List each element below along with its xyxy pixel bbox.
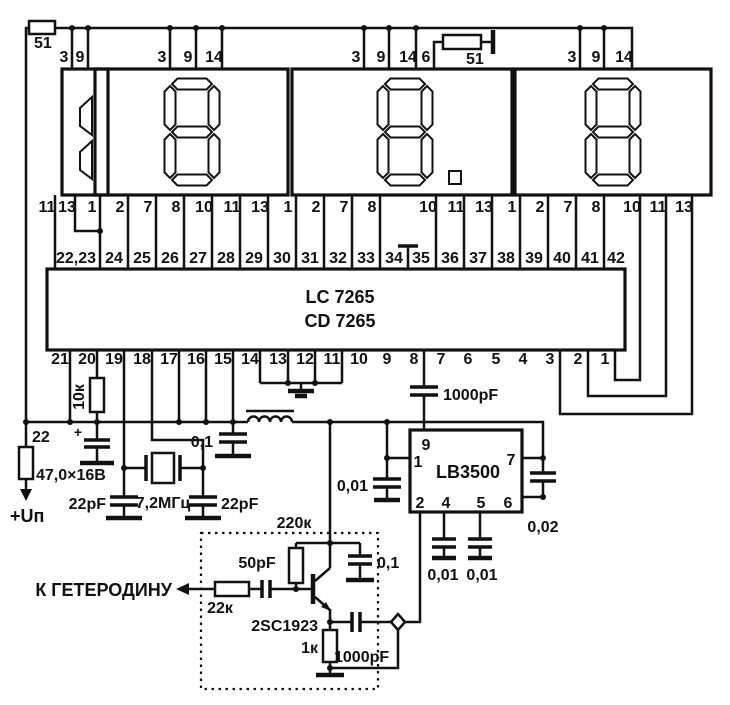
display-bottom-pin-label: 1 bbox=[284, 199, 293, 216]
electrolytic-plus-label: + bbox=[74, 424, 82, 440]
transistor-label: 2SC1923 bbox=[251, 618, 318, 635]
resistor-51-top-left-label: 51 bbox=[34, 35, 52, 52]
display-bottom-pin-label: 11 bbox=[39, 199, 56, 216]
inductor-coil bbox=[248, 417, 292, 423]
cap-001-a-label: 0,01 bbox=[427, 567, 458, 584]
resistor-51-top-right bbox=[443, 35, 481, 49]
ic-bottom-pin-label: 2 bbox=[574, 351, 583, 368]
lb3500-pin9-label: 9 bbox=[422, 437, 431, 454]
display-bottom-pin-label: 8 bbox=[172, 199, 181, 216]
display-bottom-pin-label: 8 bbox=[368, 199, 377, 216]
display-top-pin-label: 9 bbox=[377, 49, 386, 66]
ic-main-name-1: LC 7265 bbox=[305, 287, 374, 307]
display-bottom-pin-label: 13 bbox=[251, 199, 269, 216]
cap-22pf-right-label: 22pF bbox=[221, 496, 259, 513]
resistor-22k bbox=[215, 582, 249, 596]
ic-top-pin-label: 29 bbox=[245, 250, 263, 267]
lb3500-pin6-label: 6 bbox=[504, 495, 513, 512]
ic-top-pin-label: 37 bbox=[469, 250, 487, 267]
ic-bottom-pin-label: 10 bbox=[350, 351, 368, 368]
display-top-pin-label: 14 bbox=[615, 49, 633, 66]
lb3500-pin5-label: 5 bbox=[477, 495, 486, 512]
cap-1000pf-bottom-label: 1000pF bbox=[334, 649, 389, 666]
display-bottom-pin-label: 2 bbox=[116, 199, 125, 216]
ic-bottom-pin-label: 3 bbox=[546, 351, 555, 368]
ic-bottom-pin-label: 19 bbox=[105, 351, 123, 368]
resistor-10k-label: 10к bbox=[71, 383, 88, 410]
ic-top-pin-label: 26 bbox=[161, 250, 179, 267]
ic-bottom-pin-label: 21 bbox=[51, 351, 69, 368]
ic-bottom-pin-label: 14 bbox=[241, 351, 259, 368]
ic-bottom-pin-label: 8 bbox=[410, 351, 419, 368]
display-bottom-pin-label: 8 bbox=[592, 199, 601, 216]
lb3500-pin7-label: 7 bbox=[507, 452, 516, 469]
ic-bottom-pin-label: 18 bbox=[133, 351, 151, 368]
schematic-page: 51 51 10к 22 +Uп + 47,0×16В 22pF 7,2МГц … bbox=[0, 0, 730, 700]
display-bottom-pin-label: 10 bbox=[195, 199, 213, 216]
ic-top-pin-label: 40 bbox=[553, 250, 571, 267]
resistor-220k-label: 220к bbox=[277, 515, 313, 532]
ic-main-name-2: CD 7265 bbox=[304, 311, 375, 331]
display-bottom-pin-label: 11 bbox=[224, 199, 241, 216]
display-top-pin-label: 9 bbox=[592, 49, 601, 66]
frequency-counter-schematic: 51 51 10к 22 +Uп + 47,0×16В 22pF 7,2МГц … bbox=[0, 0, 730, 700]
ic-top-pin-label: 33 bbox=[357, 250, 375, 267]
display-bottom-pin-label: 1 bbox=[508, 199, 517, 216]
coax-connector-icon bbox=[391, 614, 405, 630]
display-bottom-pin-label: 11 bbox=[650, 199, 667, 216]
ic-top-pin-label: 42 bbox=[607, 250, 625, 267]
ic-top-pin-label: 27 bbox=[189, 250, 207, 267]
display-bottom-pin-label: 7 bbox=[564, 199, 573, 216]
cap-50pf-label: 50pF bbox=[238, 555, 276, 572]
display-bottom-pin-label: 10 bbox=[623, 199, 641, 216]
cap-001-b-label: 0,01 bbox=[466, 567, 497, 584]
resistor-22-label: 22 bbox=[32, 429, 50, 446]
lb3500-pin4-label: 4 bbox=[442, 495, 451, 512]
ic-bottom-pin-label: 16 bbox=[187, 351, 205, 368]
resistor-220k bbox=[289, 548, 303, 583]
display-top-pin-label: 14 bbox=[399, 49, 417, 66]
display-bottom-pin-label: 2 bbox=[536, 199, 545, 216]
ic-bottom-pin-label: 1 bbox=[601, 351, 610, 368]
output-arrow-icon bbox=[176, 583, 189, 595]
ic-top-pin-label: 25 bbox=[133, 250, 151, 267]
crystal-label: 7,2МГц bbox=[136, 495, 191, 512]
display-top-pin-label: 3 bbox=[60, 49, 69, 66]
ic-top-pin-label: 30 bbox=[273, 250, 291, 267]
display-bottom-pin-label: 7 bbox=[340, 199, 349, 216]
display-bottom-pin-label: 13 bbox=[675, 199, 693, 216]
ic-top-pin-label: 36 bbox=[441, 250, 459, 267]
resistor-22 bbox=[19, 447, 33, 479]
resistor-22k-label: 22к bbox=[207, 600, 234, 617]
display-top-pin-label: 6 bbox=[422, 49, 431, 66]
display-digits bbox=[80, 79, 641, 186]
display-top-pin-label: 3 bbox=[158, 49, 167, 66]
display-bottom-pin-label: 7 bbox=[144, 199, 153, 216]
display-bottom-pin-label: 13 bbox=[58, 199, 76, 216]
ic-bottom-pin-label: 6 bbox=[464, 351, 473, 368]
display-top-pin-label: 9 bbox=[76, 49, 85, 66]
power-arrow-icon bbox=[20, 489, 32, 501]
ic-prescaler-name: LB3500 bbox=[436, 462, 500, 482]
ic-top-pin-label: 22,23 bbox=[56, 250, 96, 267]
ic-bottom-pin-label: 17 bbox=[160, 351, 178, 368]
electrolytic-cap-label: 47,0×16В bbox=[36, 467, 106, 484]
ic-top-pin-label: 24 bbox=[105, 250, 123, 267]
ic-top-pin-label: 32 bbox=[329, 250, 347, 267]
output-label: К ГЕТЕРОДИНУ bbox=[35, 580, 172, 600]
ic-bottom-pin-label: 7 bbox=[437, 351, 446, 368]
display-top-pin-label: 3 bbox=[352, 49, 361, 66]
ic-top-pin-label: 35 bbox=[412, 250, 430, 267]
cap-1000pf-top-label: 1000pF bbox=[443, 387, 498, 404]
display-bottom-pin-label: 13 bbox=[475, 199, 493, 216]
ic-top-pin-label: 38 bbox=[497, 250, 515, 267]
cap-002-label: 0,02 bbox=[527, 519, 558, 536]
cap-22pf-left-label: 22pF bbox=[69, 496, 107, 513]
resistor-10k bbox=[90, 378, 104, 412]
lb3500-pin1-label: 1 bbox=[414, 454, 423, 471]
display-bottom-pin-label: 10 bbox=[419, 199, 437, 216]
resistor-51-top-left bbox=[29, 21, 55, 34]
ic-bottom-pin-label: 15 bbox=[214, 351, 232, 368]
cap-01-rail-label: 0,1 bbox=[191, 434, 213, 451]
display-bottom-pin-label: 11 bbox=[448, 199, 465, 216]
ic-top-pin-label: 34 bbox=[385, 250, 403, 267]
ic-top-pin-label: 31 bbox=[301, 250, 319, 267]
display-digit-1-box bbox=[62, 69, 108, 195]
display-bottom-pin-label: 1 bbox=[88, 199, 97, 216]
ic-bottom-pin-label: 20 bbox=[78, 351, 96, 368]
cap-001-left-label: 0,01 bbox=[337, 478, 368, 495]
ic-bottom-pin-label: 13 bbox=[269, 351, 287, 368]
ic-bottom-pin-label: 9 bbox=[383, 351, 392, 368]
ic-top-pin-label: 28 bbox=[217, 250, 235, 267]
ic-lc7265-box bbox=[47, 269, 625, 350]
display-top-pin-label: 14 bbox=[205, 49, 223, 66]
cap-01-box-label: 0,1 bbox=[377, 555, 399, 572]
ic-bottom-pin-label: 4 bbox=[519, 351, 528, 368]
resistor-1k-label: 1к bbox=[301, 640, 319, 657]
display-top-pin-label: 3 bbox=[568, 49, 577, 66]
power-label: +Uп bbox=[10, 506, 44, 526]
decimal-point bbox=[449, 171, 461, 184]
ic-top-pin-label: 39 bbox=[525, 250, 543, 267]
lb3500-pin2-label: 2 bbox=[416, 495, 425, 512]
ic-bottom-pin-label: 11 bbox=[324, 351, 341, 368]
resistor-51-top-right-label: 51 bbox=[466, 51, 484, 68]
ic-top-pin-label: 41 bbox=[581, 250, 599, 267]
display-top-pin-label: 9 bbox=[184, 49, 193, 66]
ic-bottom-pin-label: 12 bbox=[296, 351, 314, 368]
display-bottom-pin-label: 2 bbox=[312, 199, 321, 216]
crystal-body bbox=[152, 453, 174, 483]
ic-bottom-pin-label: 5 bbox=[492, 351, 501, 368]
